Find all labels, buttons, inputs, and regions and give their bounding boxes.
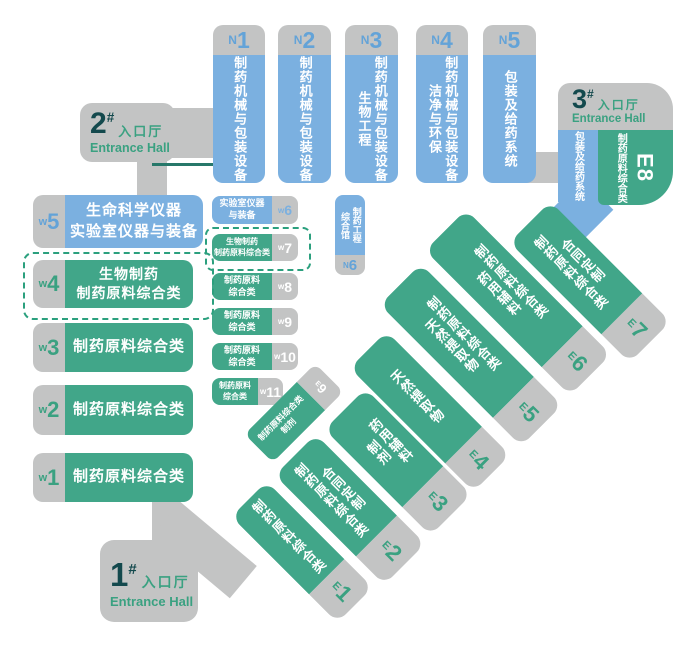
entrance-3-en: Entrance Hall [572,113,673,125]
entrance-hall-2[interactable]: 2#入口厅 Entrance Hall [80,103,175,162]
entrance-hall-3[interactable]: 3#入口厅 Entrance Hall [558,83,673,130]
hall-w9-label: w9 [272,308,298,335]
entrance-2-number: 2# [90,109,114,139]
hall-n4-label: N4 [416,25,468,55]
hall-n3-category: 制药机械与包装设备生物工程 [345,55,398,183]
hall-w3-label: w3 [33,323,65,372]
entrance-2-cn: 入口厅 [118,121,163,140]
hall-n1-category: 制药机械与包装设备 [213,55,265,183]
hall-n3[interactable]: N3 制药机械与包装设备生物工程 [345,25,398,183]
hall-e8[interactable]: 制药原料综合类 E8 [598,130,673,205]
hall-n5-category: 包装及给药系统 [483,55,536,183]
hall-w10[interactable]: 制药原料综合类 w10 [212,343,298,370]
entrance-3-number: 3# [572,86,594,113]
hall-n5-label: N5 [483,25,536,55]
hall-w5-category: 生命科学仪器实验室仪器与装备 [65,195,203,248]
hall-w8[interactable]: 制药原料综合类 w8 [212,273,298,300]
hall-e8-packaging-strip[interactable]: 包装及给药系统 [558,130,598,202]
hall-w2-label: w2 [33,385,65,435]
hall-n1-label: N1 [213,25,265,55]
hall-w6-category: 实验室仪器与装备 [212,196,272,224]
entrance-1-cn: 入口厅 [142,572,190,592]
entrance-1-number: 1# [110,558,137,591]
hall-w2[interactable]: w2 制药原料综合类 [33,385,193,435]
entrance-hall-1[interactable]: 1#入口厅 Entrance Hall [100,540,198,622]
hall-w9[interactable]: 制药原料综合类 w9 [212,308,298,335]
hall-n6[interactable]: 制药工程综合馆 N6 [335,195,365,275]
hall-n1[interactable]: N1 制药机械与包装设备 [213,25,265,183]
hall-w1-category: 制药原料综合类 [65,453,193,502]
hall-w6-label: w6 [272,196,298,224]
hall-n2-category: 制药机械与包装设备 [278,55,331,183]
hall-e8-category: 制药原料综合类 [614,133,628,203]
entrance2-threshold-line [152,163,214,166]
hall-e8-label: E8 [631,153,657,182]
hall-n6-category: 制药工程综合馆 [335,195,365,255]
highlight-box-w7 [205,227,311,271]
hall-w8-label: w8 [272,273,298,300]
hall-n6-label: N6 [335,255,365,275]
hall-w11-category: 制药原料综合类 [212,378,258,405]
hall-w11[interactable]: 制药原料综合类 w11 [212,378,283,405]
hall-w5-label: w5 [33,195,65,248]
entrance-1-en: Entrance Hall [110,594,198,609]
corridor-entrance2-right [172,108,216,158]
hall-n4[interactable]: N4 制药机械与包装设备洁净与环保 [416,25,468,183]
highlight-box-w4 [23,252,214,320]
hall-w1-label: w1 [33,453,65,502]
hall-w8-category: 制药原料综合类 [212,273,272,300]
hall-n2[interactable]: N2 制药机械与包装设备 [278,25,331,183]
hall-w5[interactable]: w5 生命科学仪器实验室仪器与装备 [33,195,203,248]
hall-n2-label: N2 [278,25,331,55]
hall-w3-category: 制药原料综合类 [65,323,193,372]
entrance-3-cn: 入口厅 [598,96,640,113]
hall-n5[interactable]: N5 包装及给药系统 [483,25,536,183]
entrance-2-en: Entrance Hall [90,141,175,155]
hall-w10-category: 制药原料综合类 [212,343,272,370]
hall-w9-category: 制药原料综合类 [212,308,272,335]
hall-w10-label: w10 [272,343,298,370]
hall-w6[interactable]: 实验室仪器与装备 w6 [212,196,298,224]
hall-w2-category: 制药原料综合类 [65,385,193,435]
hall-n3-label: N3 [345,25,398,55]
hall-w3[interactable]: w3 制药原料综合类 [33,323,193,372]
hall-w1[interactable]: w1 制药原料综合类 [33,453,193,502]
hall-n4-category: 制药机械与包装设备洁净与环保 [416,55,468,183]
